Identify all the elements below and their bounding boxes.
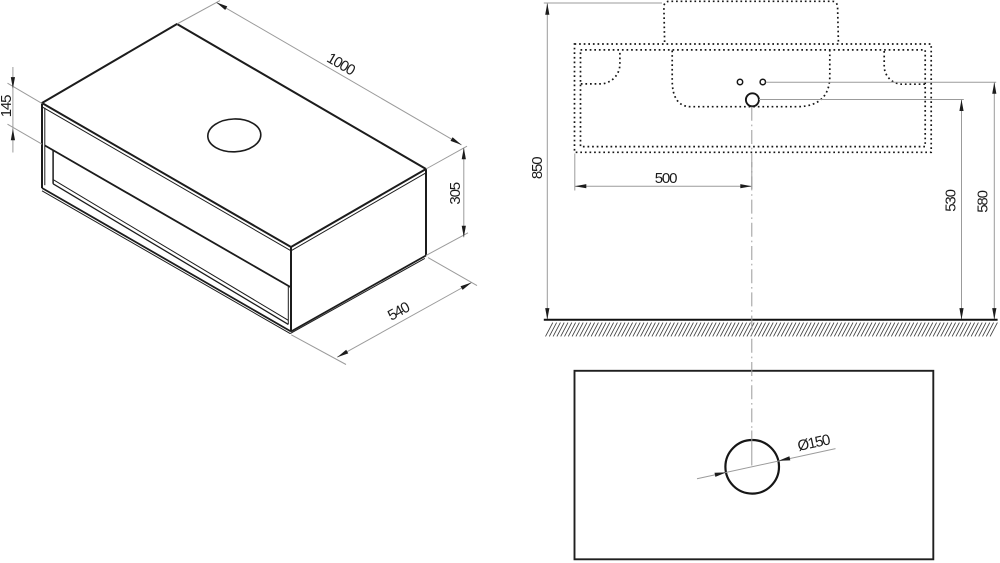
svg-text:850: 850 [529,157,546,179]
svg-text:580: 580 [974,190,991,212]
svg-text:500: 500 [655,170,677,187]
svg-text:145: 145 [0,95,15,117]
svg-text:305: 305 [447,182,464,204]
svg-text:530: 530 [942,189,959,211]
